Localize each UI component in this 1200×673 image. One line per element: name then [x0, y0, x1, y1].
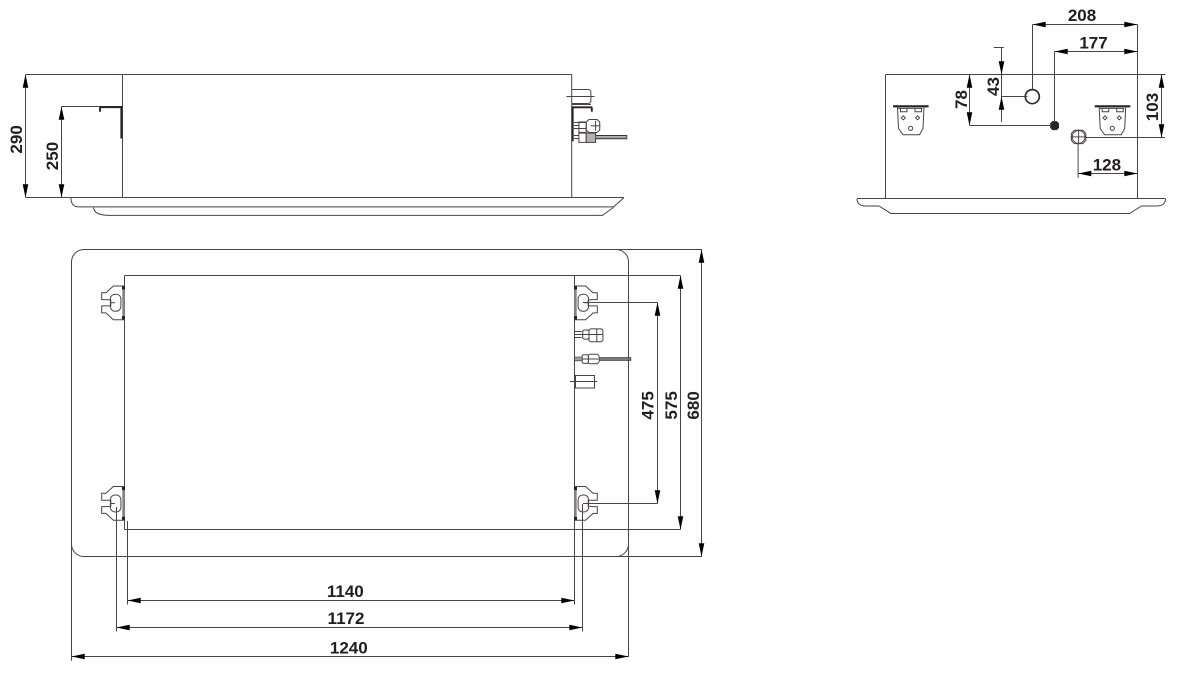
svg-text:290: 290 — [7, 125, 26, 153]
svg-text:575: 575 — [662, 391, 681, 419]
svg-text:1240: 1240 — [330, 638, 368, 657]
svg-text:250: 250 — [43, 142, 62, 170]
svg-text:177: 177 — [1079, 34, 1107, 53]
svg-text:1172: 1172 — [328, 609, 365, 628]
svg-text:1140: 1140 — [327, 582, 364, 601]
svg-text:680: 680 — [684, 391, 703, 419]
svg-text:103: 103 — [1143, 93, 1162, 121]
svg-text:43: 43 — [984, 77, 1003, 96]
svg-text:78: 78 — [952, 90, 971, 109]
svg-text:475: 475 — [639, 391, 658, 419]
svg-text:208: 208 — [1068, 6, 1096, 25]
svg-text:128: 128 — [1093, 156, 1121, 175]
